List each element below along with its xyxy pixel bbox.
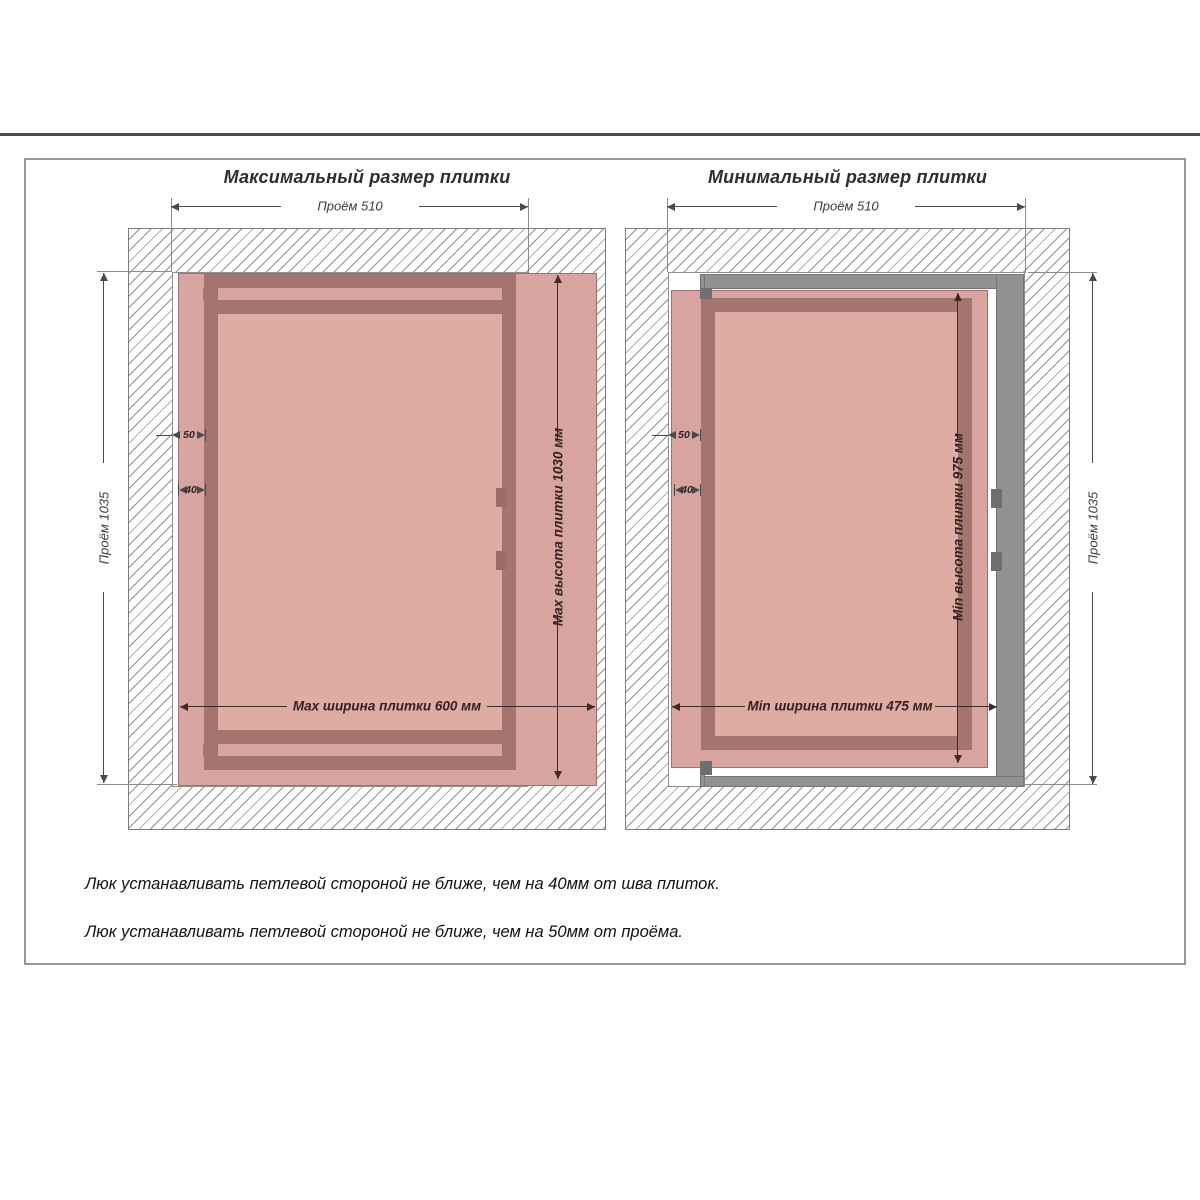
note-hinge-seam: Люк устанавливать петлевой стороной не б… — [85, 875, 720, 894]
dim-line — [1092, 592, 1093, 784]
dim-line — [667, 206, 777, 207]
arrowhead-right — [989, 703, 997, 711]
arrowhead-up — [1089, 273, 1097, 281]
extension-line — [1028, 272, 1097, 273]
dim-line — [957, 293, 958, 440]
drawing-canvas: Максимальный размер плитки Проём 510 — [0, 0, 1200, 1200]
dim-line — [1092, 273, 1093, 463]
tick — [700, 484, 701, 496]
extension-line — [1018, 784, 1097, 785]
dim-line — [935, 706, 997, 707]
panel-min: Минимальный размер плитки Проём 510 — [0, 0, 1200, 1200]
steel-frame-top — [700, 274, 1024, 289]
arrowhead-down — [1089, 776, 1097, 784]
hinge-notch-top — [700, 288, 712, 299]
dim-label: Min высота плитки 975 мм — [951, 431, 966, 623]
dim-line — [957, 614, 958, 763]
latch-tab-lower — [991, 552, 1002, 571]
dim-line — [672, 706, 745, 707]
door-tile-field — [715, 312, 958, 736]
extension-line — [1025, 198, 1026, 273]
dim-line — [915, 206, 1025, 207]
latch-tab-upper — [991, 489, 1002, 508]
hinge-notch-bottom — [700, 761, 712, 775]
arrowhead-up — [954, 293, 962, 301]
arrowhead-right — [692, 486, 700, 494]
arrowhead-left — [672, 703, 680, 711]
dim-label: Проём 510 — [808, 199, 883, 214]
steel-frame-right — [996, 274, 1024, 787]
dim-line — [652, 435, 668, 436]
arrowhead-right — [692, 431, 700, 439]
arrowhead-right — [1017, 203, 1025, 211]
arrowhead-left — [668, 431, 676, 439]
dim-label: Проём 1035 — [1086, 487, 1101, 570]
tick — [700, 429, 701, 441]
note-hinge-opening: Люк устанавливать петлевой стороной не б… — [85, 923, 683, 942]
arrowhead-left — [667, 203, 675, 211]
arrowhead-down — [954, 755, 962, 763]
dim-label: 50 — [677, 429, 691, 441]
panel-min-title: Минимальный размер плитки — [625, 167, 1070, 188]
dim-label: Min ширина плитки 475 мм — [745, 699, 934, 714]
steel-frame-bottom — [701, 776, 1024, 787]
